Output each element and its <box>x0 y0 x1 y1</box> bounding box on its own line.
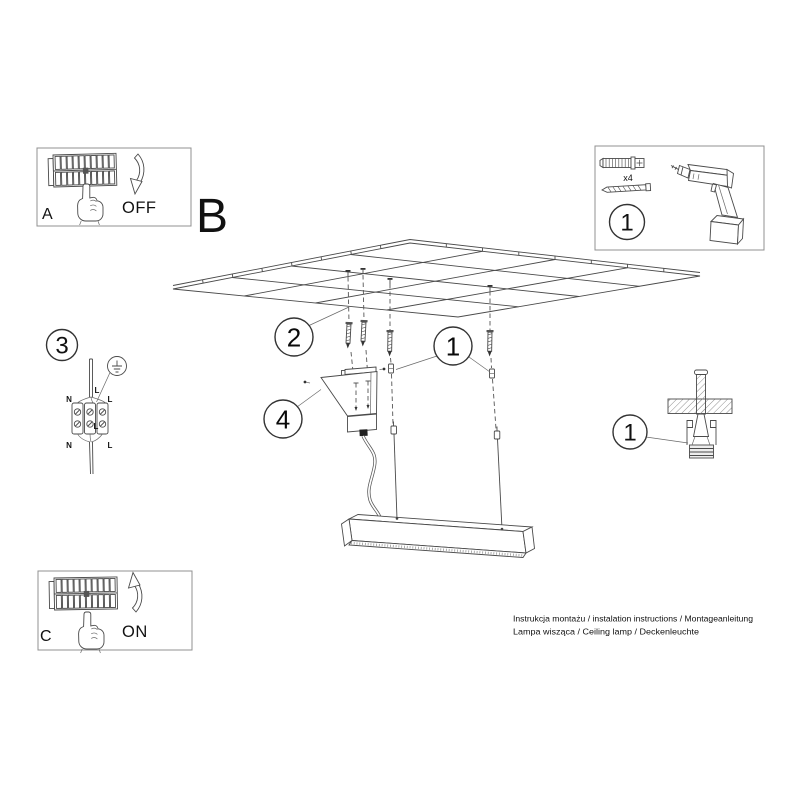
wire-mount-right <box>501 528 504 531</box>
screw-icon <box>602 184 651 194</box>
wire-adjuster-icon <box>391 426 397 434</box>
step-c-label: C <box>40 628 52 645</box>
wiring-diagram: 3 N L L L N L <box>47 330 127 475</box>
callout-2-number: 2 <box>287 323 301 353</box>
arrow-down-icon <box>131 154 144 194</box>
on-label: ON <box>122 623 148 641</box>
canopy-driver-box <box>348 414 377 432</box>
callout-1-number: 1 <box>446 332 460 362</box>
footer-line1: Instrukcja montażu / instalation instruc… <box>513 614 753 624</box>
wall-plug-icon <box>600 157 644 169</box>
footer-line2: Lampa wisząca / Ceiling lamp / Deckenleu… <box>513 627 699 637</box>
quantity-label: x4 <box>623 173 633 183</box>
callout-3-number: 3 <box>55 333 68 360</box>
suspension-wire-left <box>386 284 397 519</box>
hand-icon <box>78 184 103 225</box>
callout-detail-number: 1 <box>623 420 636 447</box>
drill-icon <box>671 165 744 245</box>
wiring-l-wire: L <box>95 386 100 395</box>
step-b-label: B <box>196 190 228 243</box>
suspension-wire-right <box>486 291 502 529</box>
wiring-l-inner: L <box>94 422 99 431</box>
linear-lamp <box>342 515 535 558</box>
instruction-sheet: A OFF B x4 1 <box>0 0 800 800</box>
footer: Instrukcja montażu / instalation instruc… <box>513 614 753 637</box>
wiring-l-top: L <box>108 395 113 404</box>
power-cord <box>363 436 381 519</box>
manual-drawing: A OFF B x4 1 <box>0 0 800 800</box>
wiring-l-bottom: L <box>108 441 113 450</box>
hand-icon <box>79 612 104 653</box>
canopy <box>304 367 386 436</box>
ceiling-grid <box>173 240 700 318</box>
callout-canopy: 4 <box>264 390 321 439</box>
anchor-detail: 1 <box>613 370 732 458</box>
cord-plug <box>359 429 367 436</box>
arrow-up-icon <box>129 573 142 613</box>
callout-4-number: 4 <box>276 405 290 435</box>
parts-callout-number: 1 <box>620 210 633 237</box>
breaker-panel-icon <box>49 577 118 610</box>
wire-adjuster-icon <box>494 431 500 439</box>
step-c-panel: C ON <box>38 571 192 653</box>
suspension-cone <box>694 414 709 437</box>
callout-suspension: 1 <box>396 327 490 372</box>
parts-box: x4 1 <box>595 146 764 250</box>
screw-head <box>695 370 708 375</box>
off-label: OFF <box>122 199 157 217</box>
wiring-n-bottom: N <box>66 441 72 450</box>
callout-screw-anchors: 2 <box>275 307 349 356</box>
terminal-block-icon <box>72 403 108 434</box>
step-a-label: A <box>42 206 53 223</box>
wire-mount-left <box>396 517 399 520</box>
breaker-panel-icon <box>48 153 117 187</box>
step-a-panel: A OFF <box>37 148 191 226</box>
screw-shank <box>697 375 706 415</box>
wiring-n-top: N <box>66 395 72 404</box>
